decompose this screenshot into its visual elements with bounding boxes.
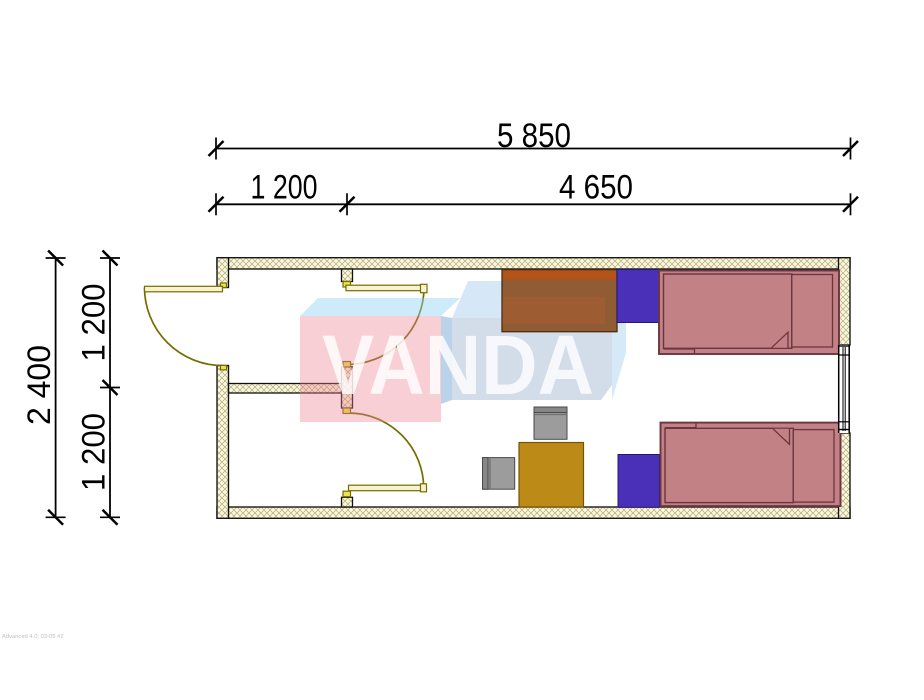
svg-text:5 850: 5 850 xyxy=(497,117,571,155)
svg-text:1 200: 1 200 xyxy=(76,284,112,362)
svg-text:1 200: 1 200 xyxy=(251,169,318,207)
svg-text:Advanced 4.0; 03-05 #2: Advanced 4.0; 03-05 #2 xyxy=(2,634,64,640)
svg-text:4 650: 4 650 xyxy=(559,169,633,207)
svg-text:2 400: 2 400 xyxy=(21,345,57,425)
svg-text:1 200: 1 200 xyxy=(76,413,112,491)
